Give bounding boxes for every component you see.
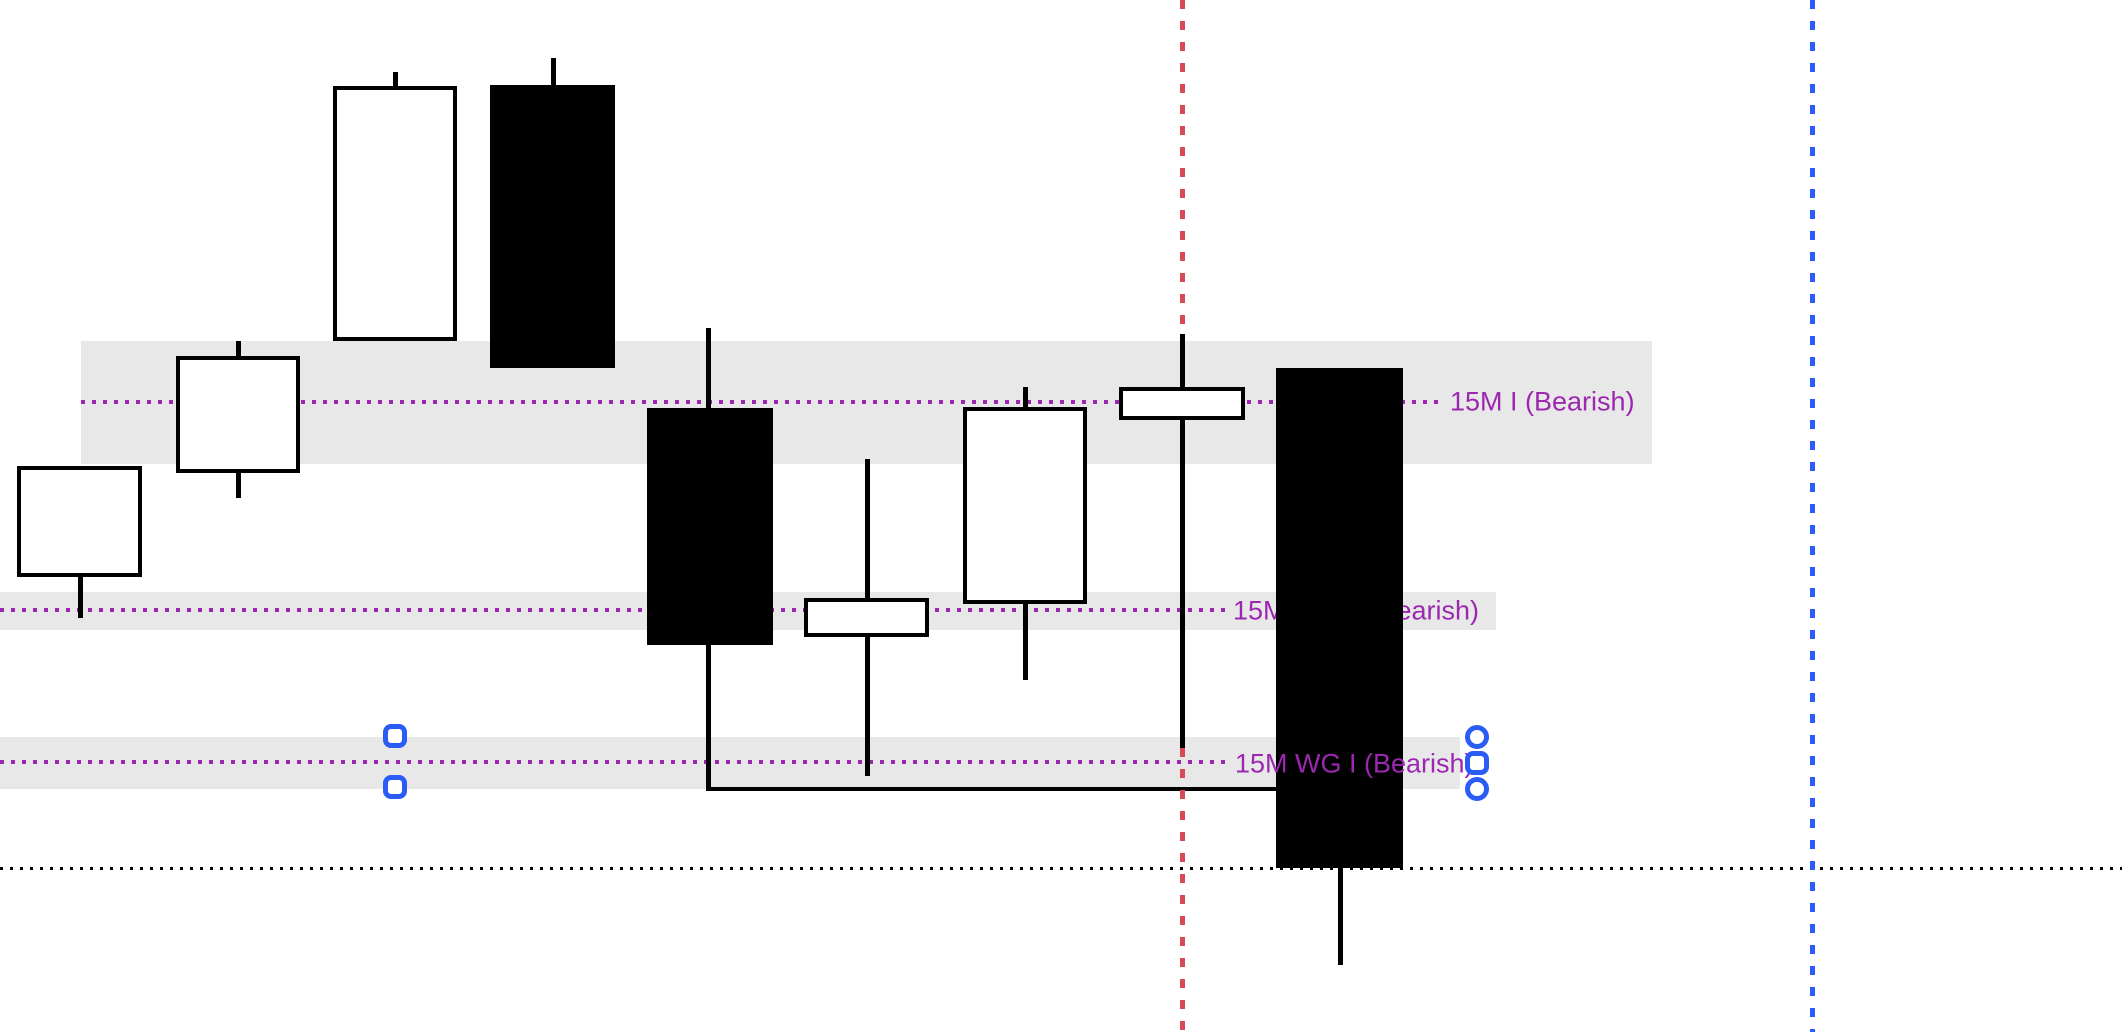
wick-gap-line xyxy=(708,787,1276,791)
candle-wick xyxy=(551,58,556,85)
candle-body xyxy=(1276,368,1403,868)
candle-wick xyxy=(1338,868,1343,965)
zone-label[interactable]: 15M I (Bearish) xyxy=(1450,389,1635,416)
candle-wick xyxy=(865,637,870,776)
zone-midline xyxy=(0,760,1230,764)
candle-wick xyxy=(393,72,398,86)
candle-body xyxy=(647,408,773,645)
candle-wick xyxy=(1023,604,1028,680)
candle-wick xyxy=(78,577,83,618)
zone-midline xyxy=(0,608,1228,612)
candle-body xyxy=(17,466,142,577)
session-line-blue[interactable] xyxy=(1810,0,1815,1032)
chart-canvas[interactable]: 15M I (Bearish)15M WG II (Bearish)15M WG… xyxy=(0,0,2122,1032)
candle-body xyxy=(804,598,929,637)
price-baseline xyxy=(0,867,2122,870)
selection-handle-square[interactable] xyxy=(1465,751,1489,775)
candle-wick xyxy=(706,328,711,408)
session-line-red[interactable] xyxy=(1180,0,1185,333)
candle-wick xyxy=(865,459,870,598)
candle-body xyxy=(490,85,615,368)
candle-wick xyxy=(236,341,241,356)
selection-handle-square[interactable] xyxy=(383,775,407,799)
candle-body xyxy=(333,86,457,341)
selection-handle-square[interactable] xyxy=(383,724,407,748)
candle-body xyxy=(176,356,300,473)
candle-wick xyxy=(1180,420,1185,748)
selection-handle-circle[interactable] xyxy=(1465,777,1489,801)
candle-wick xyxy=(706,645,711,791)
zone-label[interactable]: 15M WG I (Bearish) xyxy=(1235,751,1474,778)
selection-handle-circle[interactable] xyxy=(1465,725,1489,749)
candle-wick xyxy=(1180,334,1185,387)
candle-body xyxy=(1119,387,1245,420)
candle-body xyxy=(963,407,1087,604)
session-line-red[interactable] xyxy=(1180,748,1185,1032)
candle-wick xyxy=(1023,387,1028,407)
candle-wick xyxy=(236,473,241,498)
